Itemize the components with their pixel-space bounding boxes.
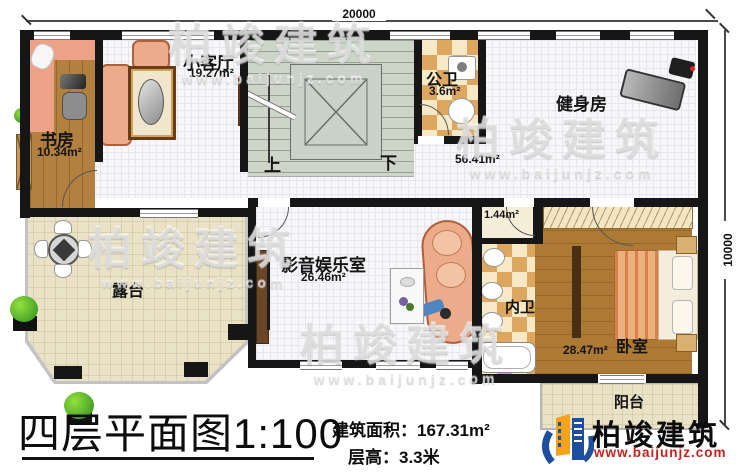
room-area-media: 26.46m²	[301, 270, 346, 284]
stairs-edge	[248, 176, 414, 177]
pillow-icon	[672, 256, 693, 290]
chair-icon	[54, 220, 72, 234]
bed-icon	[614, 250, 696, 338]
floor-height-label: 层高：	[348, 448, 399, 467]
sliding-door	[140, 209, 198, 218]
brand-logo-icon	[538, 408, 594, 470]
person-head-icon	[440, 308, 451, 319]
table-center-icon	[53, 239, 76, 262]
wall	[478, 40, 486, 144]
bathtub-inner-icon	[483, 346, 531, 369]
wall	[20, 30, 30, 218]
door-opening	[590, 198, 634, 207]
dimension-width: 20000	[332, 7, 386, 21]
wall	[240, 40, 248, 172]
door-opening	[418, 136, 444, 144]
room-label-inner-bath: 内卫	[505, 296, 535, 317]
nightstand-icon	[676, 236, 697, 254]
window	[478, 31, 530, 40]
door-opening	[504, 198, 534, 207]
rug-oval-icon	[138, 79, 164, 125]
tv-panel-icon	[572, 246, 581, 338]
tv-icon	[267, 262, 270, 330]
railing-post	[54, 366, 82, 379]
railing-post	[184, 362, 208, 377]
stairs-up-label: 上	[264, 151, 281, 176]
wall	[472, 198, 482, 384]
sink-drain-icon	[457, 62, 467, 72]
rug-icon	[128, 66, 176, 140]
window	[300, 361, 342, 370]
flowers-icon	[406, 303, 414, 311]
plan-scale: 1:100	[233, 410, 343, 457]
floor-height: 层高：3.3米	[348, 443, 440, 468]
window	[122, 31, 214, 40]
dining-table-icon	[48, 234, 80, 266]
monitor-icon	[60, 74, 86, 89]
shaft-x-icon	[291, 65, 381, 159]
room-label-bedroom: 卧室	[616, 333, 648, 357]
sink-icon	[481, 282, 503, 300]
chair-icon	[54, 264, 72, 278]
wall	[698, 30, 708, 428]
window	[34, 31, 70, 40]
bush-icon	[10, 296, 38, 322]
stairs-arrow	[268, 75, 270, 163]
wall	[482, 238, 535, 244]
room-label-gym: 健身房	[556, 90, 607, 115]
bathtub-icon	[478, 342, 536, 373]
chair-icon	[34, 240, 48, 258]
coffee-table-icon	[390, 268, 424, 324]
window	[556, 31, 600, 40]
elevator-shaft	[290, 64, 382, 160]
sliding-door	[600, 375, 644, 384]
sink-icon	[481, 312, 503, 330]
floor-plan: 书房 10.34m² 小客厅 19.27m² 公卫 3.6m² 健身房 56.4…	[0, 0, 750, 474]
office-chair-icon	[62, 92, 87, 120]
room-area-study: 10.34m²	[37, 145, 82, 159]
title-underline	[22, 457, 314, 460]
brand-logo: 柏竣建筑 www.baijunjz.com	[508, 404, 750, 474]
brand-website: www.baijunjz.com	[594, 445, 727, 460]
room-area-living: 19.27m²	[189, 66, 234, 80]
wall	[472, 374, 708, 383]
dimension-tick	[705, 9, 715, 19]
treadmill-light-icon	[689, 66, 695, 72]
blanket-icon	[614, 250, 660, 340]
terrace-pillar	[228, 324, 254, 340]
chair-icon	[78, 240, 92, 258]
page-title: 四层平面图1:100	[18, 400, 343, 461]
building-area-value: 167.31m²	[417, 421, 490, 440]
window	[436, 361, 468, 370]
room-label-terrace: 露台	[112, 277, 144, 301]
toilet-icon	[448, 98, 475, 124]
wall	[20, 208, 256, 217]
building-area: 建筑面积：167.31m²	[332, 416, 490, 441]
stairs-down-label: 下	[380, 149, 397, 174]
pillow-icon	[672, 300, 693, 334]
sofa-cushion-icon	[436, 262, 466, 288]
room-area-bedroom: 28.47m²	[563, 343, 608, 357]
floor-height-value: 3.3米	[399, 448, 440, 467]
sofa-cushion-icon	[432, 230, 462, 256]
hall-area: 56.41m²	[455, 152, 500, 166]
dish-icon	[400, 277, 415, 287]
window	[390, 31, 450, 40]
building-area-label: 建筑面积：	[332, 421, 417, 440]
nightstand-icon	[676, 334, 697, 352]
wall	[95, 40, 103, 162]
dimension-height: 10000	[721, 221, 735, 279]
window	[376, 361, 420, 370]
wall	[248, 198, 256, 368]
toilet-icon	[483, 248, 505, 267]
plan-title: 四层平面图	[18, 410, 233, 457]
room-area-inner-bath: 1.44m²	[484, 209, 519, 221]
room-area-public-bath: 3.6m²	[429, 84, 460, 98]
door-opening	[258, 198, 290, 207]
window	[630, 31, 674, 40]
